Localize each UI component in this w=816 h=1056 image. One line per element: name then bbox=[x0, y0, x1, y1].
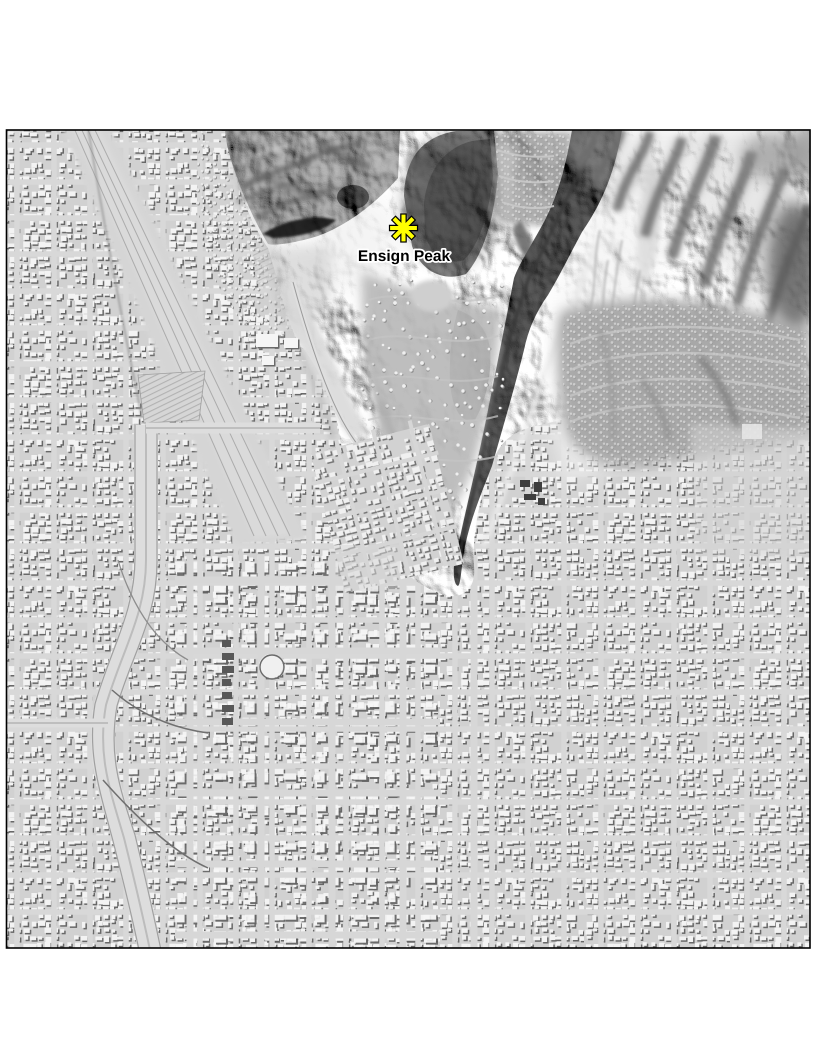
svg-text:Ensign Peak: Ensign Peak bbox=[358, 248, 451, 265]
